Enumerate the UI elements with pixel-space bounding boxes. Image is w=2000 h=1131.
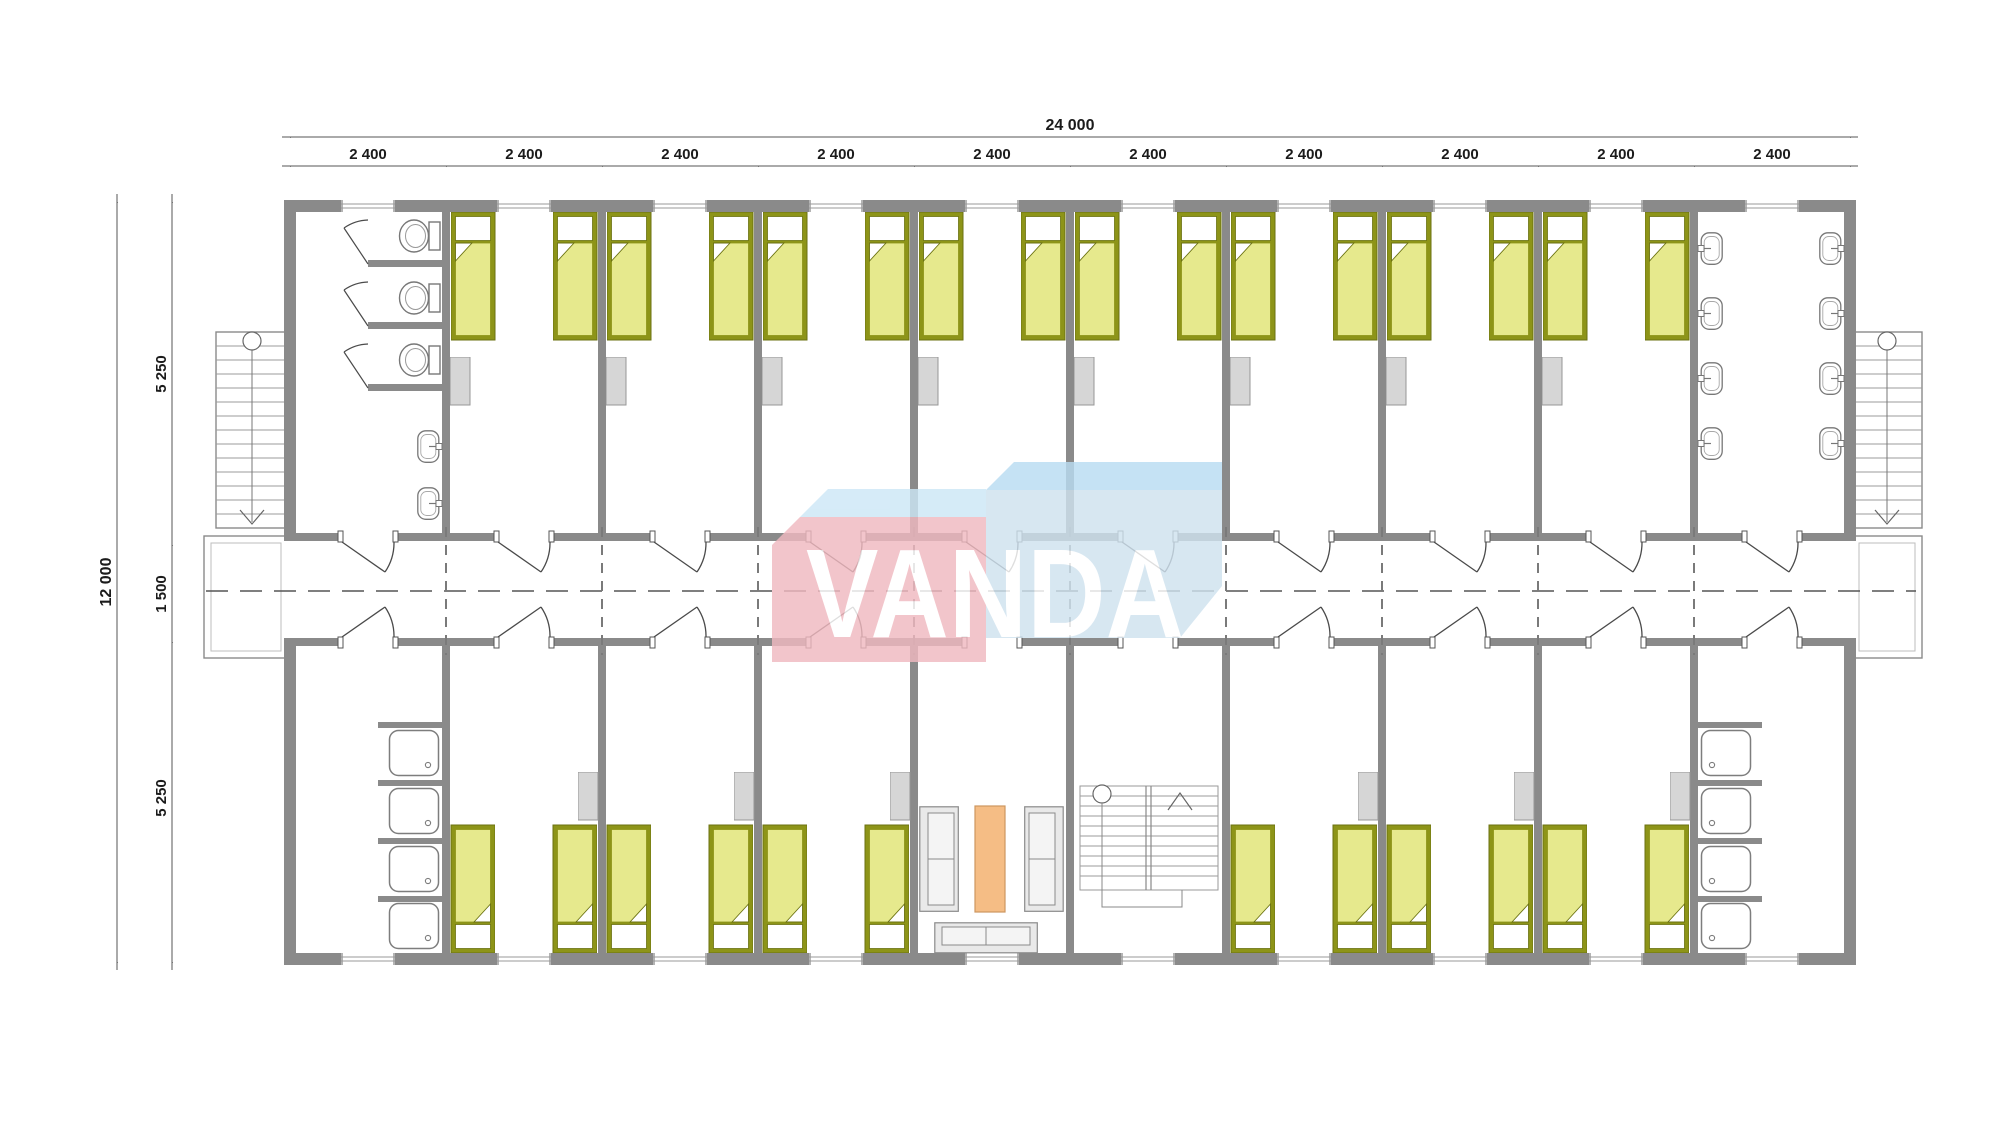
toilet bbox=[400, 344, 441, 376]
washroom-sink bbox=[1820, 363, 1844, 395]
washroom-sink bbox=[1820, 298, 1844, 330]
stair-start-circle bbox=[243, 332, 261, 350]
washroom bbox=[1698, 233, 1844, 459]
internal-stair bbox=[1080, 785, 1218, 907]
corridor-opening-left bbox=[283, 541, 297, 638]
dim-seg-10: 2 400 bbox=[1753, 146, 1791, 163]
lounge bbox=[920, 806, 1063, 953]
washroom-sink bbox=[1820, 428, 1844, 460]
wc-sink bbox=[418, 488, 442, 520]
logo-text: VANDA bbox=[806, 523, 1184, 664]
floor-plan-drawing: 24 000 2 400 2 400 2 400 2 400 2 400 2 4… bbox=[0, 0, 2000, 1131]
vanda-logo: VANDA bbox=[772, 462, 1222, 664]
sofa-bottom bbox=[935, 923, 1038, 953]
stall-doors bbox=[344, 220, 368, 388]
toilet bbox=[400, 282, 441, 314]
dim-seg-7: 2 400 bbox=[1285, 146, 1323, 163]
dim-seg-9: 2 400 bbox=[1597, 146, 1635, 163]
toilet bbox=[400, 220, 441, 252]
washroom-sink bbox=[1698, 363, 1722, 395]
stair-landing-right bbox=[1852, 536, 1922, 658]
sofa-right bbox=[1025, 807, 1064, 912]
washroom-sink bbox=[1820, 233, 1844, 264]
dim-seg-8: 2 400 bbox=[1441, 146, 1479, 163]
dim-seg-4: 2 400 bbox=[817, 146, 855, 163]
stair-start-circle bbox=[1093, 785, 1111, 803]
dim-seg-2: 2 400 bbox=[505, 146, 543, 163]
dim-left-seg-3: 5 250 bbox=[153, 779, 170, 817]
floor-plan-canvas: 24 000 2 400 2 400 2 400 2 400 2 400 2 4… bbox=[0, 0, 2000, 1131]
washroom-sink bbox=[1698, 298, 1722, 330]
washroom-sink bbox=[1698, 233, 1722, 264]
logo-top-face-right bbox=[986, 462, 1222, 490]
coffee-table bbox=[975, 806, 1005, 912]
sofa-left bbox=[920, 807, 959, 912]
dim-seg-5: 2 400 bbox=[973, 146, 1011, 163]
dim-seg-3: 2 400 bbox=[661, 146, 699, 163]
dim-left-seg-2: 1 500 bbox=[153, 575, 170, 613]
corridor-opening-right bbox=[1843, 541, 1857, 638]
dim-top-total: 24 000 bbox=[1046, 117, 1095, 134]
dim-left-total: 12 000 bbox=[98, 557, 115, 606]
dim-left-seg-1: 5 250 bbox=[153, 355, 170, 393]
wc-sink bbox=[418, 431, 442, 463]
dim-seg-6: 2 400 bbox=[1129, 146, 1167, 163]
dim-seg-1: 2 400 bbox=[349, 146, 387, 163]
external-stair-left bbox=[204, 332, 288, 658]
stair-landing-left bbox=[204, 536, 288, 658]
logo-top-face-left bbox=[800, 489, 986, 517]
stair-start-circle bbox=[1878, 332, 1896, 350]
external-stair-right bbox=[1852, 332, 1922, 658]
washroom-sink bbox=[1698, 428, 1722, 460]
